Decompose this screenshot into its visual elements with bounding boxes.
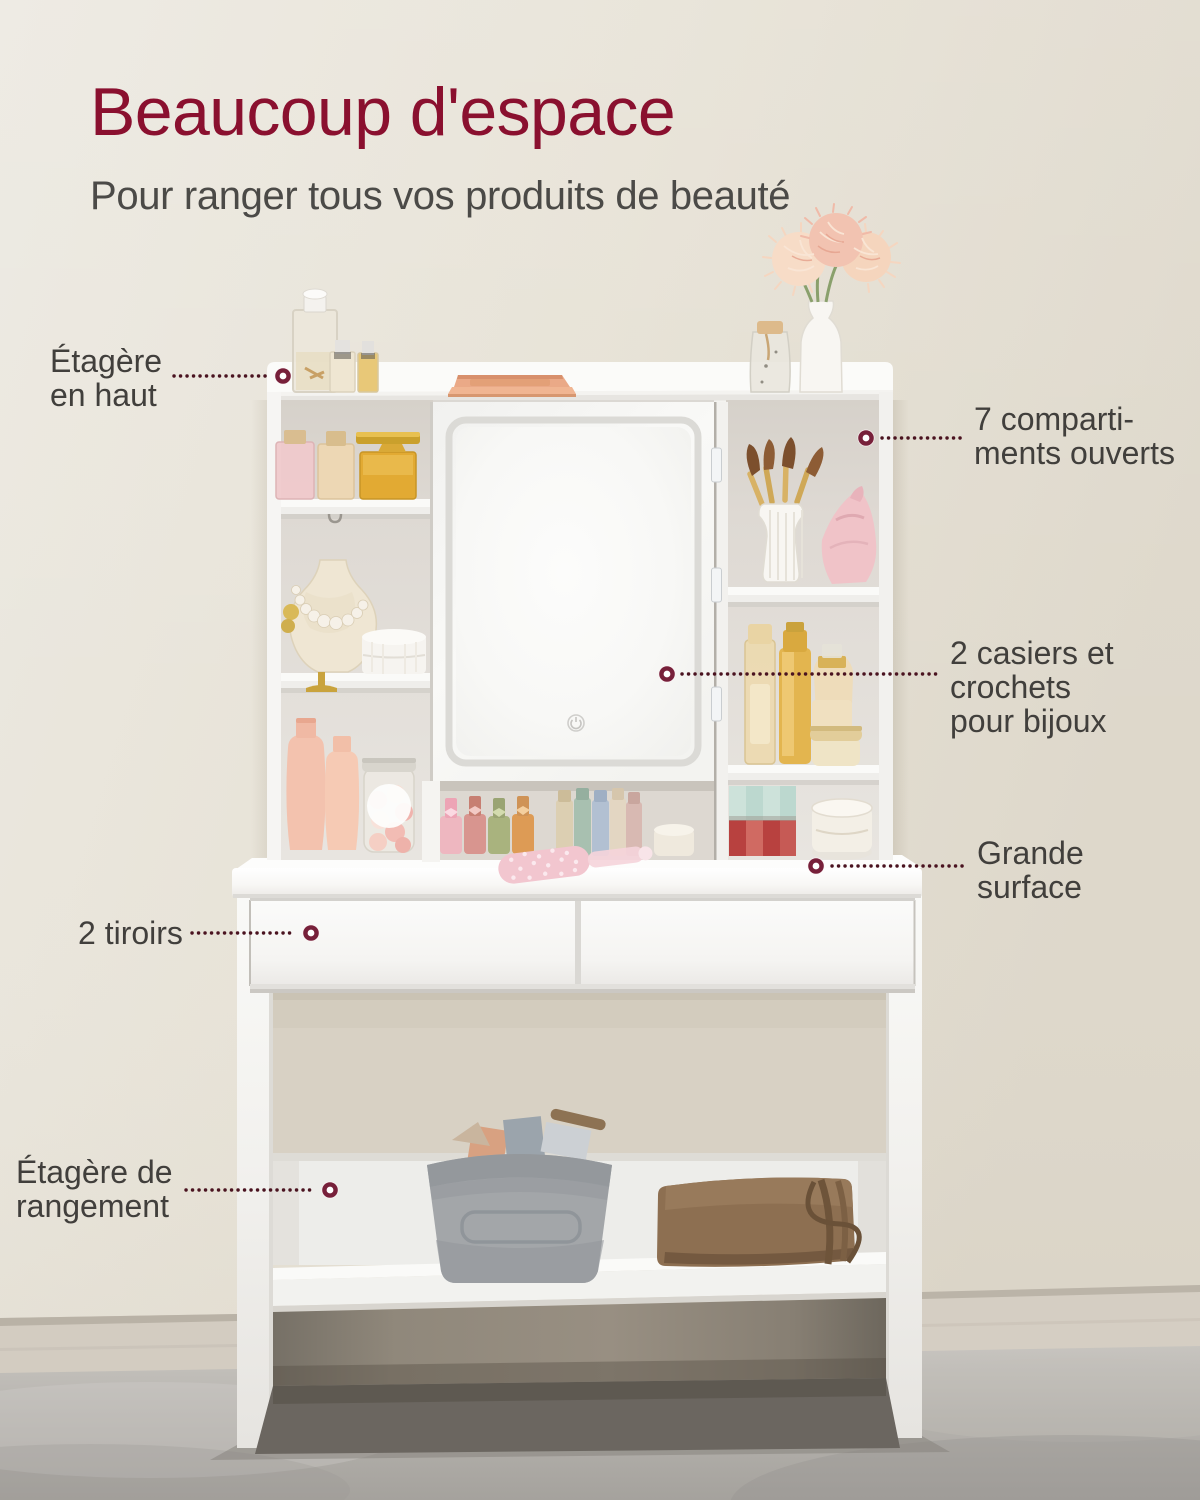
svg-text:2 casiers et: 2 casiers et bbox=[950, 635, 1114, 671]
svg-text:surface: surface bbox=[977, 869, 1082, 905]
svg-text:pour bijoux: pour bijoux bbox=[950, 703, 1107, 739]
svg-text:Beaucoup d'espace: Beaucoup d'espace bbox=[90, 74, 675, 150]
svg-text:crochets: crochets bbox=[950, 669, 1071, 705]
svg-text:7 comparti-: 7 comparti- bbox=[974, 401, 1134, 437]
svg-text:en haut: en haut bbox=[50, 377, 157, 413]
svg-text:Étagère de: Étagère de bbox=[16, 1154, 173, 1190]
svg-text:2 tiroirs: 2 tiroirs bbox=[78, 915, 183, 951]
svg-text:rangement: rangement bbox=[16, 1188, 169, 1224]
svg-text:Pour ranger tous vos produits: Pour ranger tous vos produits de beauté bbox=[90, 174, 790, 218]
svg-text:Étagère: Étagère bbox=[50, 343, 162, 379]
svg-text:ments ouverts: ments ouverts bbox=[974, 435, 1175, 471]
svg-text:Grande: Grande bbox=[977, 835, 1084, 871]
